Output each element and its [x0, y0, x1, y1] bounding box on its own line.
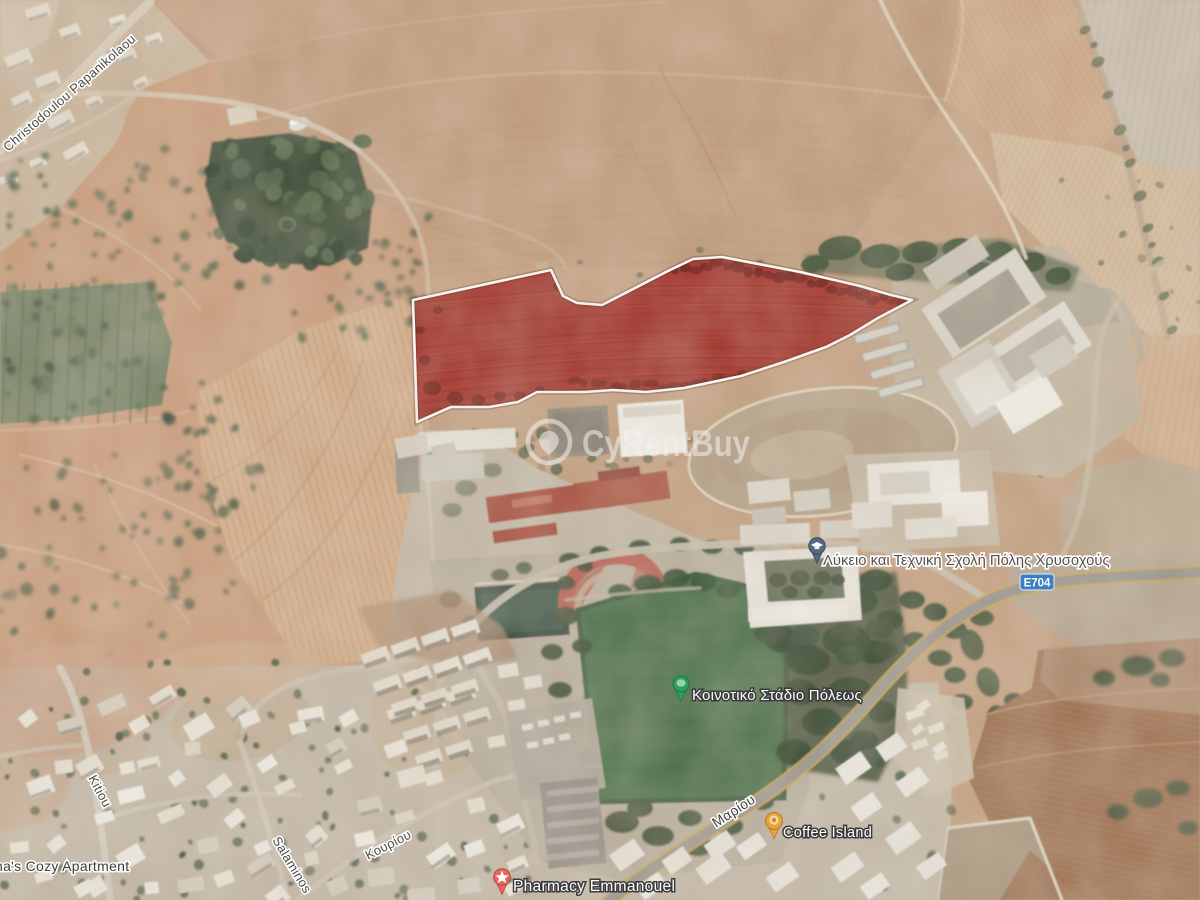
svg-text:Κοινοτικό Στάδιο Πόλεως: Κοινοτικό Στάδιο Πόλεως	[692, 687, 862, 704]
svg-text:Coffee Island: Coffee Island	[783, 825, 872, 841]
svg-text:E704: E704	[1024, 578, 1051, 590]
svg-text:na's Cozy Apartment: na's Cozy Apartment	[0, 858, 129, 874]
svg-text:Λύκειο και Τεχνική Σχολή Πόλης: Λύκειο και Τεχνική Σχολή Πόλης Χρυσοχούς	[823, 553, 1110, 569]
svg-text:CyRentBuy: CyRentBuy	[582, 423, 750, 464]
svg-text:Pharmacy Emmanouel: Pharmacy Emmanouel	[513, 878, 675, 895]
